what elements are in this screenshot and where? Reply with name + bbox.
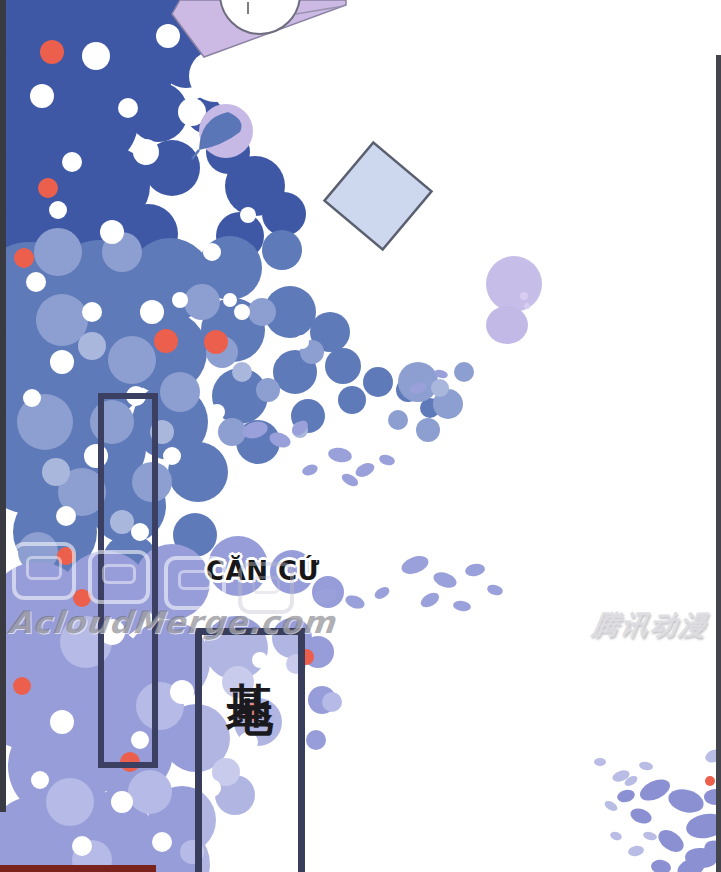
signboard-text: 基地 bbox=[227, 645, 273, 661]
diamond-shape bbox=[324, 142, 431, 249]
corner-leaves-mid bbox=[616, 775, 721, 872]
ghost-watermark-glyph bbox=[88, 550, 150, 604]
snowman-circles bbox=[486, 256, 542, 344]
watermark-acloudmerge: AcloudMerge.com bbox=[6, 604, 337, 640]
ghost-watermark-glyph bbox=[164, 556, 226, 610]
right-edge-strip bbox=[716, 55, 721, 872]
left-edge-strip bbox=[0, 0, 6, 812]
comic-page: 基地 CĂN CỨ AcloudMerge.com 腾讯动漫 bbox=[0, 0, 721, 872]
base-signboard: 基地 bbox=[195, 628, 305, 872]
watermark-tencent: 腾讯动漫 bbox=[589, 607, 711, 643]
ghost-watermark-glyph bbox=[12, 542, 76, 600]
protractor-shape bbox=[172, 0, 346, 57]
bottom-maroon-bar bbox=[0, 865, 156, 872]
